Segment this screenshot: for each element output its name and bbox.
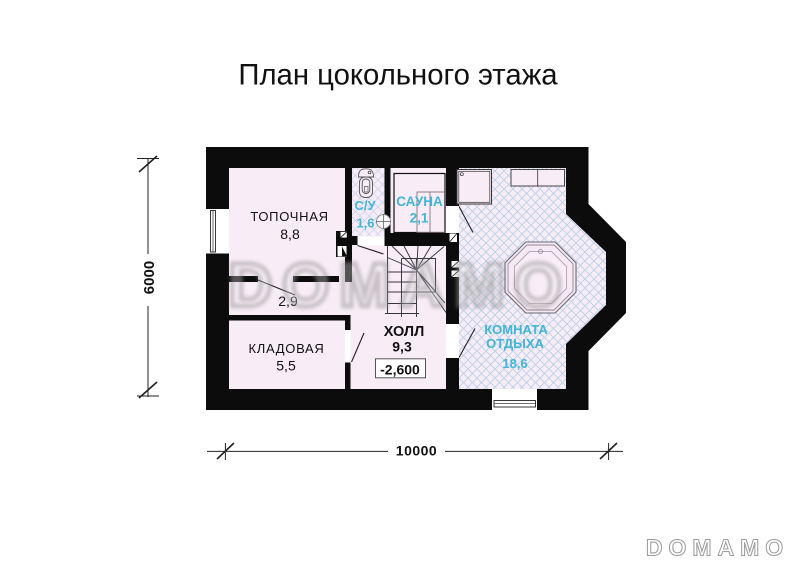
svg-text:18,6: 18,6 xyxy=(502,356,527,371)
svg-text:DOMAMO: DOMAMO xyxy=(228,251,571,319)
svg-text:6000: 6000 xyxy=(141,261,158,294)
svg-text:План цокольного этажа: План цокольного этажа xyxy=(238,59,558,92)
svg-text:ХОЛЛ: ХОЛЛ xyxy=(384,324,425,340)
svg-text:-2,600: -2,600 xyxy=(380,362,420,378)
svg-text:КЛАДОВАЯ: КЛАДОВАЯ xyxy=(248,341,324,356)
svg-text:КОМНАТА: КОМНАТА xyxy=(484,322,548,337)
svg-text:2,1: 2,1 xyxy=(410,211,429,226)
svg-text:5,5: 5,5 xyxy=(276,357,296,373)
svg-text:DOMAMO: DOMAMO xyxy=(646,535,789,561)
svg-text:1,6: 1,6 xyxy=(356,216,374,231)
svg-text:9,3: 9,3 xyxy=(392,339,412,355)
svg-text:С/У: С/У xyxy=(354,198,376,213)
svg-text:10000: 10000 xyxy=(396,443,437,459)
svg-text:ТОПОЧНАЯ: ТОПОЧНАЯ xyxy=(250,209,328,224)
svg-text:8,8: 8,8 xyxy=(280,226,300,242)
svg-text:ОТДЫХА: ОТДЫХА xyxy=(486,336,544,351)
svg-text:САУНА: САУНА xyxy=(396,194,443,209)
